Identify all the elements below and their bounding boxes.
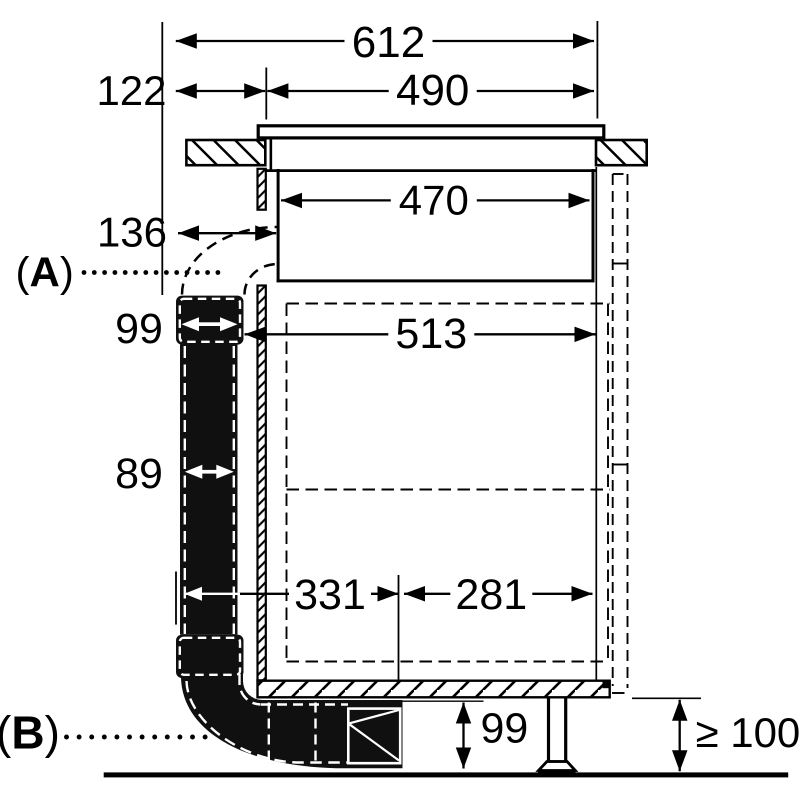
svg-text:331: 331 xyxy=(294,571,366,619)
svg-text:490: 490 xyxy=(396,66,469,115)
svg-text:89: 89 xyxy=(115,450,163,498)
svg-text:(A): (A) xyxy=(16,249,74,296)
svg-text:470: 470 xyxy=(399,176,469,223)
svg-text:(B): (B) xyxy=(0,707,60,759)
svg-text:513: 513 xyxy=(395,310,467,358)
svg-text:136: 136 xyxy=(97,209,167,256)
svg-text:612: 612 xyxy=(352,18,425,67)
svg-text:281: 281 xyxy=(455,571,527,619)
svg-text:≥ 100: ≥ 100 xyxy=(696,709,800,756)
svg-text:122: 122 xyxy=(96,67,166,114)
svg-text:99: 99 xyxy=(115,305,163,353)
svg-text:99: 99 xyxy=(480,705,528,753)
